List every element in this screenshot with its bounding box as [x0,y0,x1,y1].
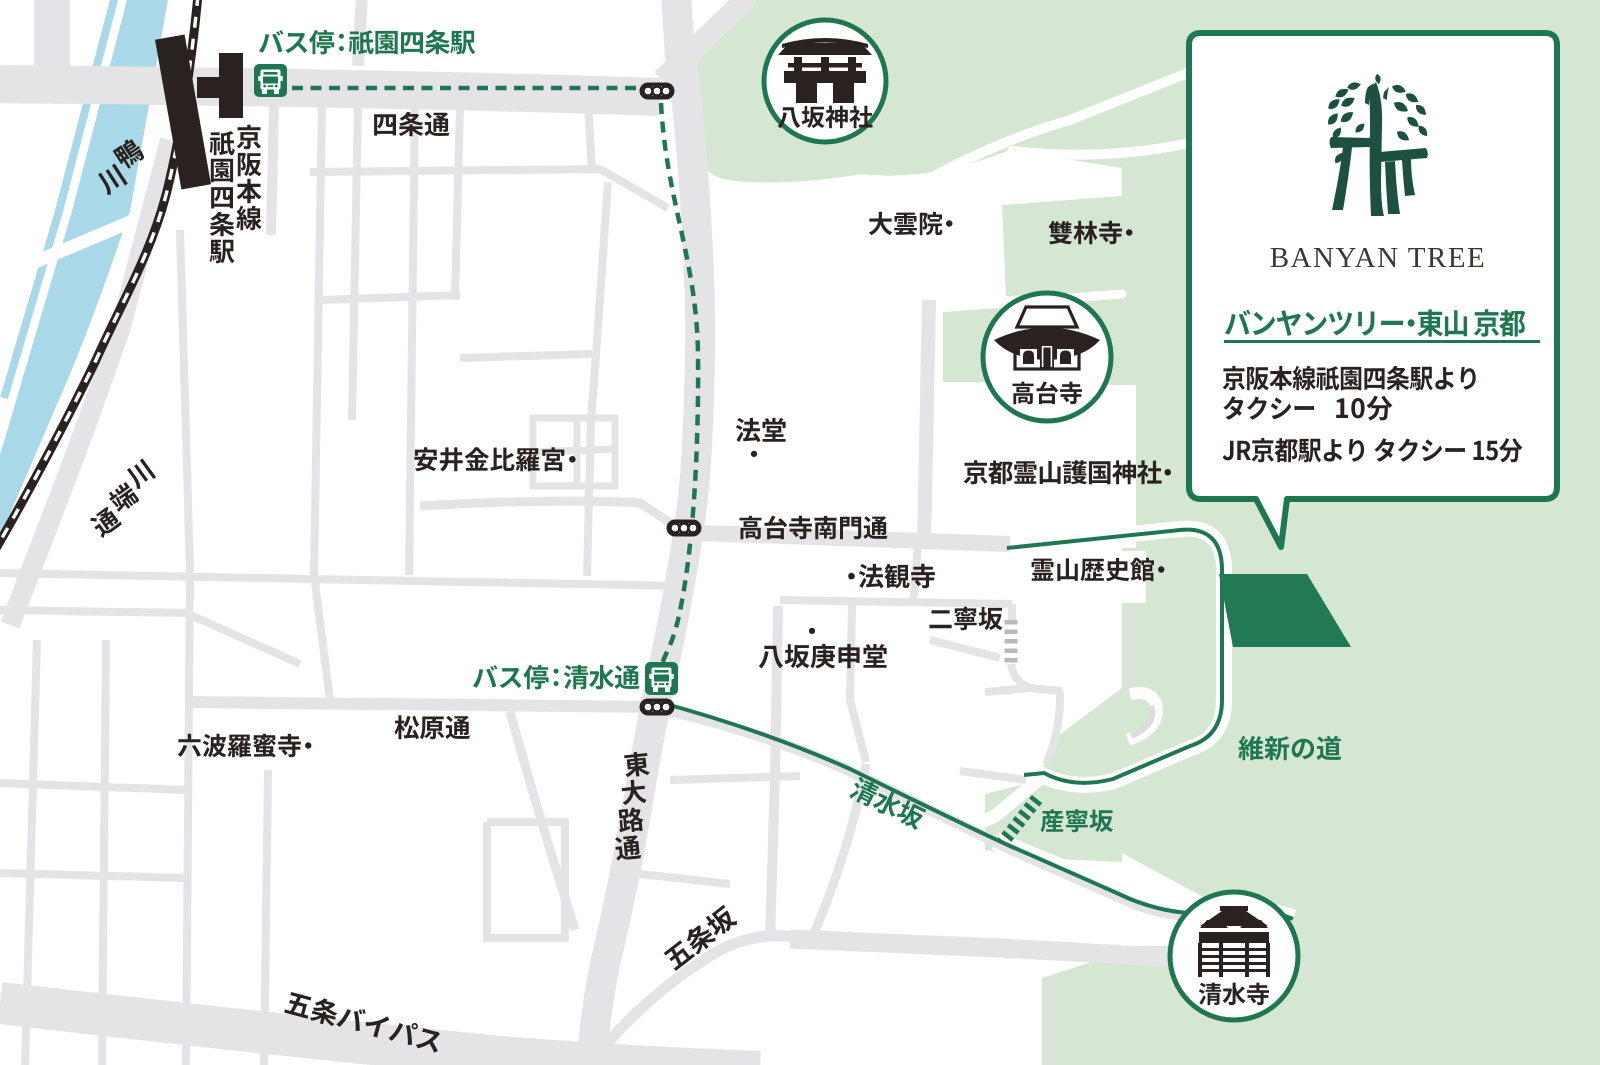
svg-text:BANYAN TREE: BANYAN TREE [1270,242,1487,274]
